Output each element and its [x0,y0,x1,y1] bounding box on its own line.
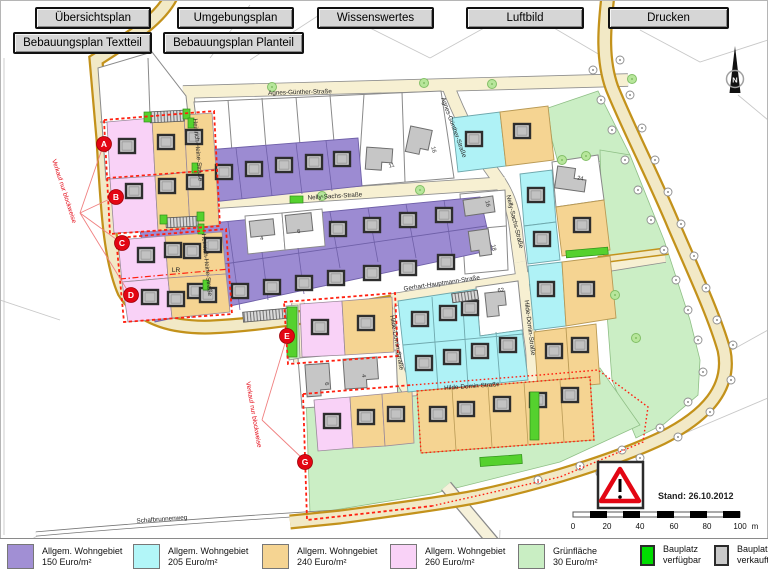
svg-text:G: G [302,457,309,467]
button-bebauungsplan-textteil[interactable]: Bebauungsplan Textteil [13,32,152,54]
lr-label: LR [172,267,181,274]
legend-item-150: Allgem. Wohngebiet150 Euro/m² [7,544,122,569]
legend-swatch-sold [714,545,729,566]
svg-text:B: B [113,192,119,202]
legend-item-gruenflaeche: Grünfläche30 Euro/m² [518,544,598,569]
button-umgebungsplan[interactable]: Umgebungsplan [177,7,294,29]
block-marker-g[interactable]: G [298,455,313,470]
button-luftbild[interactable]: Luftbild [466,7,584,29]
svg-text:N: N [732,76,737,85]
plan-application: Verkauf nur blockweise Verkauf nur block… [0,0,768,576]
button-uebersichtsplan[interactable]: Übersichtsplan [35,7,151,29]
svg-text:E: E [284,331,290,341]
svg-text:100: 100 [733,522,747,531]
legend-swatch-pink [390,544,417,569]
svg-text:62: 62 [497,288,504,295]
svg-text:40: 40 [636,522,645,531]
legend: Allgem. Wohngebiet150 Euro/m² Allgem. Wo… [0,538,768,576]
block-marker-a[interactable]: A [97,137,112,152]
svg-text:D: D [128,290,134,300]
legend-swatch-cyan [133,544,160,569]
block-marker-b[interactable]: B [109,190,124,205]
svg-text:A: A [101,139,107,149]
legend-item-205: Allgem. Wohngebiet205 Euro/m² [133,544,248,569]
button-drucken[interactable]: Drucken [608,7,729,29]
legend-item-verfuegbar: Bauplatzverfügbar [634,544,701,566]
legend-swatch-available [640,545,655,566]
svg-text:80: 80 [703,522,712,531]
button-bebauungsplan-planteil[interactable]: Bebauungsplan Planteil [163,32,304,54]
svg-text:6: 6 [323,382,329,386]
block-marker-c[interactable]: C [115,236,130,251]
legend-item-240: Allgem. Wohngebiet240 Euro/m² [262,544,377,569]
legend-swatch-orange [262,544,289,569]
legend-item-verkauft: Bauplatzverkauft [708,544,768,566]
stand-date: Stand: 26.10.2012 [658,491,734,501]
legend-item-260: Allgem. Wohngebiet260 Euro/m² [390,544,505,569]
svg-text:20: 20 [603,522,612,531]
block-marker-e[interactable]: E [280,329,295,344]
svg-text:0: 0 [571,522,576,531]
plan-map[interactable]: Verkauf nur blockweise Verkauf nur block… [0,0,768,576]
scale-unit: m [752,522,759,531]
svg-text:60: 60 [670,522,679,531]
legend-swatch-purple [7,544,34,569]
svg-text:C: C [119,238,125,248]
legend-swatch-green [518,544,545,569]
warning-icon [598,462,643,508]
button-wissenswertes[interactable]: Wissenswertes [317,7,434,29]
block-marker-d[interactable]: D [124,288,139,303]
